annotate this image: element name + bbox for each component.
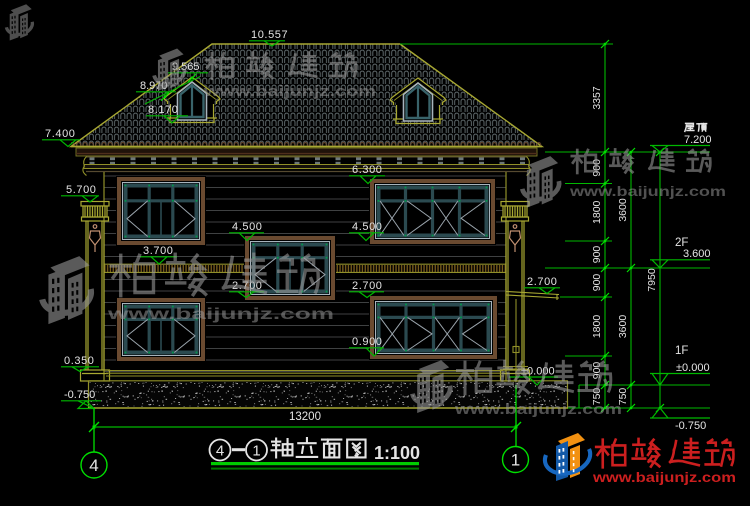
svg-text:www.baijunjz.com: www.baijunjz.com: [569, 183, 726, 199]
svg-text:1: 1: [252, 443, 260, 460]
svg-text:±0.000: ±0.000: [676, 362, 710, 374]
svg-text:www.baijunjz.com: www.baijunjz.com: [106, 306, 334, 323]
svg-text:1F: 1F: [675, 345, 688, 357]
svg-text:1800: 1800: [591, 315, 603, 339]
svg-text:6.300: 6.300: [352, 164, 383, 176]
svg-text:7950: 7950: [646, 268, 658, 292]
svg-text:1800: 1800: [591, 200, 603, 224]
svg-text:3357: 3357: [591, 86, 603, 110]
svg-text:www.baijunjz.com: www.baijunjz.com: [592, 469, 736, 485]
svg-text:8.170: 8.170: [148, 104, 179, 116]
svg-text:3.600: 3.600: [683, 248, 711, 260]
svg-text:0.350: 0.350: [64, 355, 95, 367]
svg-text:13200: 13200: [289, 411, 321, 423]
svg-text:7.200: 7.200: [684, 134, 712, 146]
svg-text:10.557: 10.557: [251, 29, 288, 41]
svg-text:0.900: 0.900: [352, 336, 383, 348]
svg-text:1: 1: [511, 451, 520, 470]
svg-text:900: 900: [591, 246, 603, 264]
svg-text:www.baijunjz.com: www.baijunjz.com: [454, 402, 622, 418]
svg-text:4: 4: [89, 456, 98, 475]
svg-text:4.500: 4.500: [352, 221, 383, 233]
svg-text:4: 4: [216, 443, 224, 460]
svg-text:2.700: 2.700: [527, 276, 558, 288]
svg-text:5.700: 5.700: [66, 184, 97, 196]
svg-text:7.400: 7.400: [45, 128, 76, 140]
svg-text:-0.750: -0.750: [64, 389, 95, 401]
svg-text:1:100: 1:100: [374, 443, 420, 463]
svg-text:www.baijunjz.com: www.baijunjz.com: [203, 84, 376, 100]
svg-text:3600: 3600: [617, 315, 629, 339]
svg-text:3600: 3600: [617, 198, 629, 222]
svg-text:-0.750: -0.750: [675, 420, 706, 432]
svg-text:900: 900: [591, 274, 603, 292]
svg-text:2.700: 2.700: [352, 280, 383, 292]
svg-text:3.700: 3.700: [143, 245, 174, 257]
svg-text:4.500: 4.500: [232, 221, 263, 233]
